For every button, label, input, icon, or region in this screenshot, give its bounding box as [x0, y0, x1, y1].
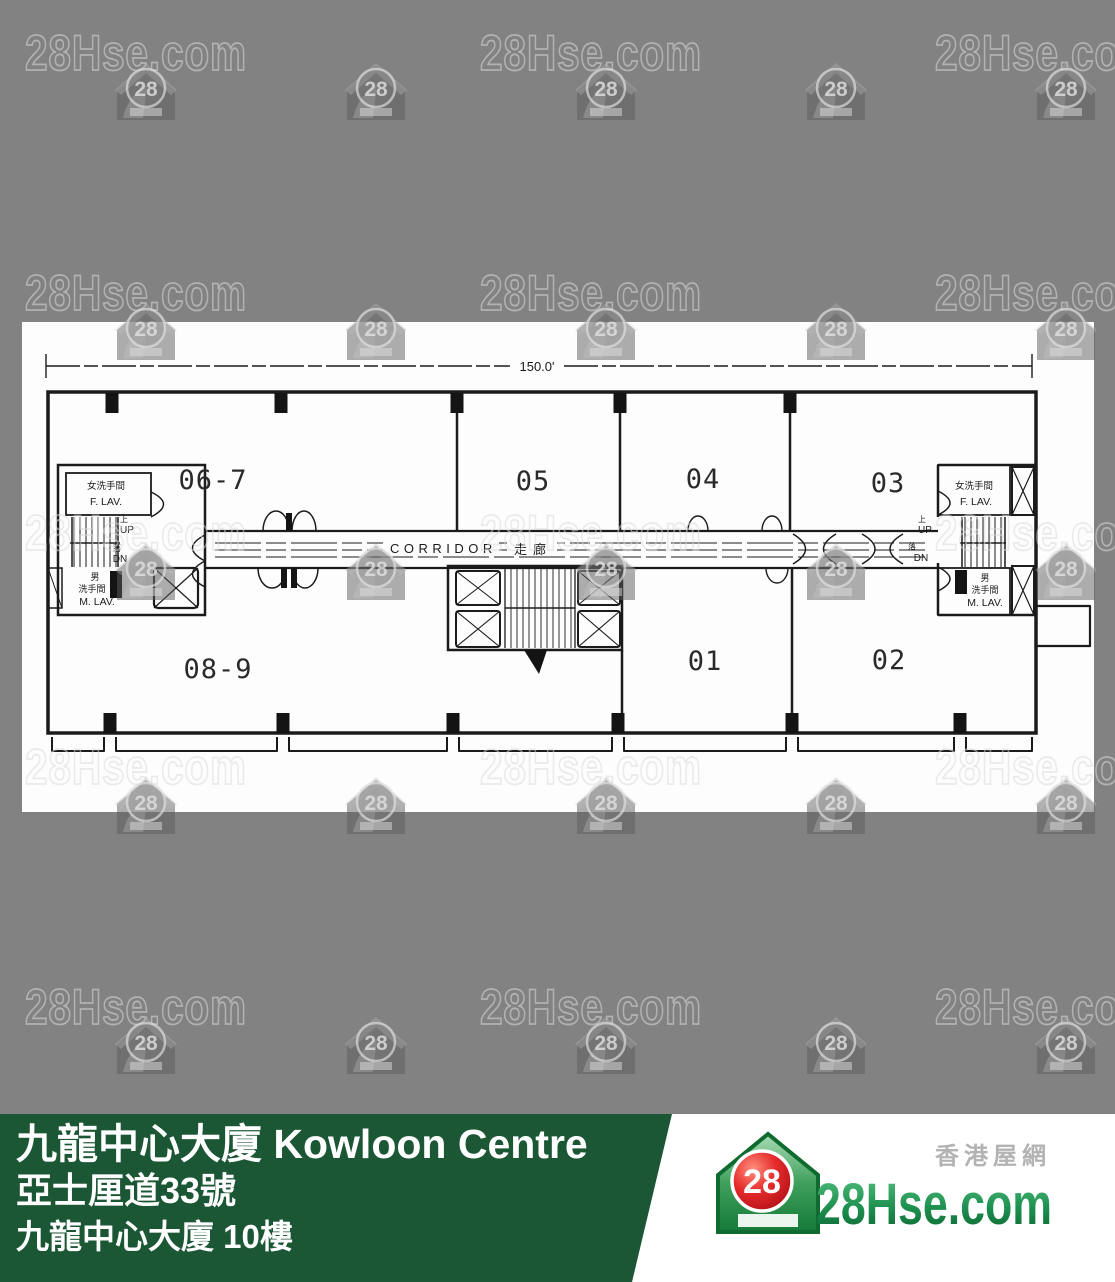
site-brand: 28Hse.com	[816, 1166, 1115, 1241]
site-logo-badge: 28	[743, 1163, 781, 1201]
female-lav-label-en: F. LAV.	[960, 496, 992, 508]
watermark-house-icon	[345, 1017, 407, 1074]
watermark-house-icon	[805, 63, 867, 120]
dimension-label: 150.0'	[519, 359, 554, 374]
watermark-text: 28Hse.com	[25, 979, 247, 1035]
corridor: CORRIDOR 走廊	[205, 531, 938, 568]
male-lav-label-zh1: 男	[980, 573, 989, 583]
bottom-banner: 九龍中心大廈 Kowloon Centre 亞士厘道33號 九龍中心大廈 10樓…	[0, 1114, 1115, 1282]
unit-label: 08-9	[183, 654, 252, 685]
stair-dn-zh: 落	[908, 541, 916, 551]
building-title: 九龍中心大廈 Kowloon Centre	[16, 1122, 672, 1168]
watermark-house-icon	[1035, 1017, 1097, 1074]
site-logo: 香港屋網 28	[700, 1114, 1115, 1282]
site-logo-house-icon: 28	[712, 1128, 824, 1238]
male-lav-label-en: M. LAV.	[967, 597, 1003, 609]
unit-label: 02	[872, 645, 907, 676]
stair-dn-en: DN	[113, 554, 127, 565]
watermark-house-icon	[575, 1017, 637, 1074]
stair-up-en: UP	[120, 525, 134, 536]
watermark-house-icon	[115, 1017, 177, 1074]
stair-dn-en: DN	[914, 553, 928, 564]
watermark-house-icon	[345, 63, 407, 120]
upper-unit-walls	[457, 393, 790, 531]
property-info-panel: 九龍中心大廈 Kowloon Centre 亞士厘道33號 九龍中心大廈 10樓	[0, 1114, 672, 1282]
watermark-text: 28Hse.com	[935, 265, 1115, 321]
building-address: 亞士厘道33號	[16, 1170, 672, 1212]
watermark-text: 28Hse.com	[480, 25, 702, 81]
watermark-house-icon	[805, 1017, 867, 1074]
unit-label: 05	[516, 466, 551, 497]
unit-label: 06-7	[178, 465, 247, 496]
watermark-text: 28Hse.com	[480, 979, 702, 1035]
central-core	[448, 566, 622, 674]
stair-up-zh: 上	[918, 515, 926, 524]
watermark-house-icon	[575, 63, 637, 120]
watermark-text: 28Hse.com	[935, 979, 1115, 1035]
unit-label: 01	[688, 646, 723, 677]
unit-label: 04	[686, 464, 721, 495]
male-lav-label-zh2: 洗手間	[971, 584, 998, 595]
watermark-text: 28Hse.com	[480, 265, 702, 321]
watermark-text: 28Hse.com	[25, 265, 247, 321]
unit-label: 03	[871, 468, 906, 499]
floorplan-sheet: 150.0' CORRIDOR 走廊	[22, 322, 1094, 812]
watermark-house-icon	[115, 63, 177, 120]
watermark-text: 28Hse.com	[935, 25, 1115, 81]
male-lav-label-zh2: 洗手間	[78, 583, 105, 594]
female-lav-label-zh: 女洗手間	[87, 480, 125, 492]
stair-up-zh: 上	[120, 515, 128, 524]
stair-up-en: UP	[918, 525, 932, 536]
site-brand-text: 28Hse.com	[816, 1172, 1052, 1237]
floorplan-drawing: 150.0' CORRIDOR 走廊	[22, 322, 1094, 812]
corridor-label-zh: 走廊	[514, 542, 552, 557]
lift-shafts	[456, 571, 620, 647]
dimension-line: 150.0'	[46, 354, 1032, 378]
corridor-label-en: CORRIDOR	[390, 541, 497, 556]
watermark-text: 28Hse.com	[25, 25, 247, 81]
female-lav-label-en: F. LAV.	[90, 496, 122, 508]
female-lav-label-zh: 女洗手間	[955, 480, 993, 492]
stair-dn-zh: 落	[113, 543, 121, 553]
listing-floorplan-image: 150.0' CORRIDOR 走廊	[0, 0, 1115, 1282]
building-floor: 九龍中心大廈 10樓	[16, 1217, 672, 1257]
male-lav-label-en: M. LAV.	[79, 596, 115, 608]
male-lav-label-zh1: 男	[90, 572, 99, 582]
watermark-house-icon	[1035, 63, 1097, 120]
